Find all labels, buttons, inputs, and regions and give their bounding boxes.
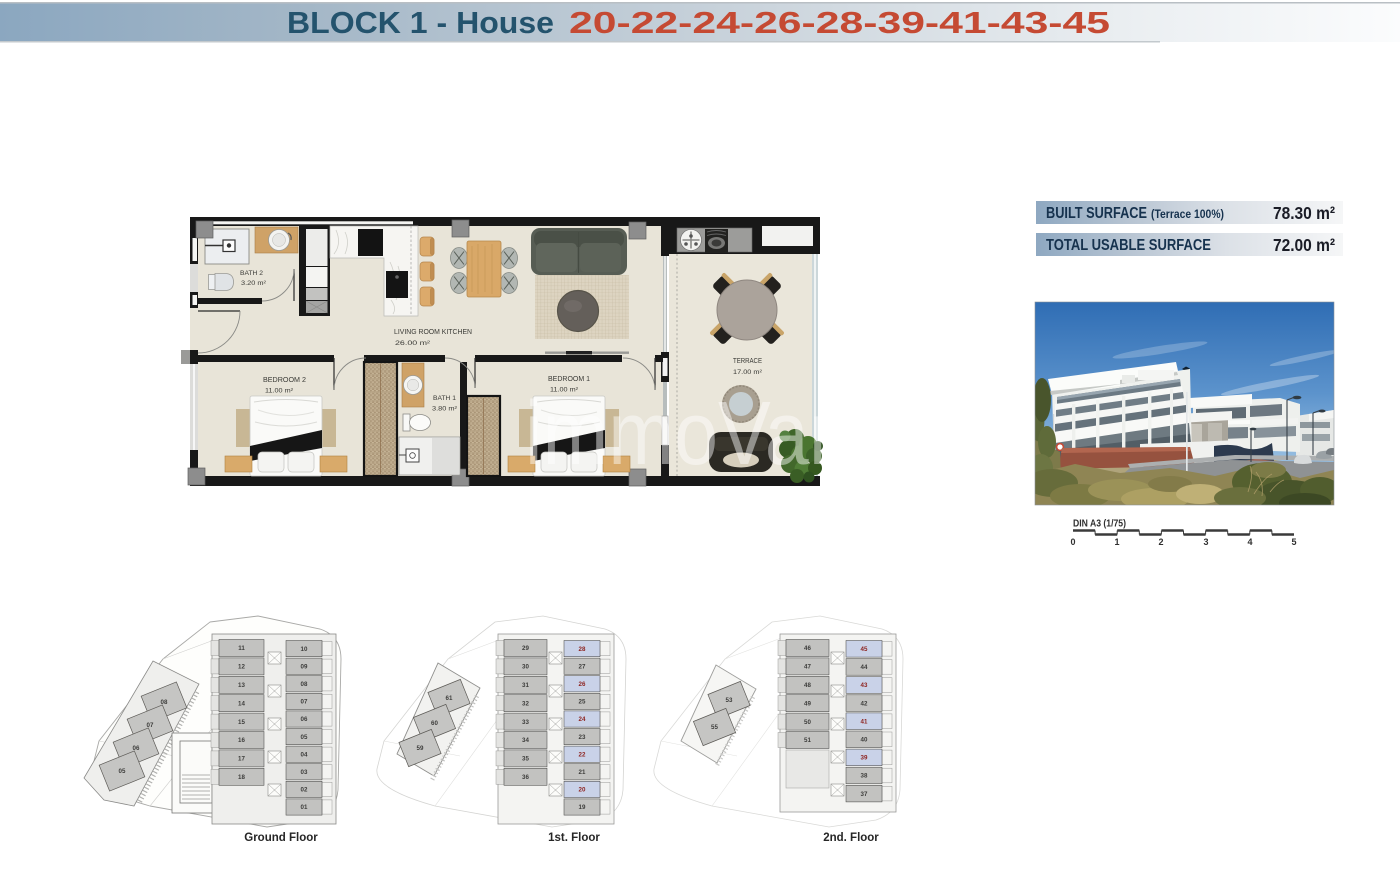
svg-text:19: 19 — [579, 804, 586, 811]
svg-text:60: 60 — [431, 720, 438, 727]
svg-text:36: 36 — [522, 774, 529, 781]
svg-text:2nd. Floor: 2nd. Floor — [823, 832, 879, 844]
svg-text:BATH 2: BATH 2 — [240, 270, 263, 277]
svg-text:17: 17 — [238, 756, 245, 763]
svg-text:40: 40 — [861, 737, 868, 744]
svg-text:21: 21 — [579, 769, 586, 776]
svg-text:DIN A3 (1/75): DIN A3 (1/75) — [1073, 518, 1126, 530]
svg-text:30: 30 — [522, 664, 529, 671]
svg-text:20-22-24-26-28-39-41-43-45: 20-22-24-26-28-39-41-43-45 — [569, 5, 1110, 40]
svg-text:3: 3 — [1203, 537, 1208, 547]
svg-text:17.00 m²: 17.00 m² — [733, 369, 763, 376]
svg-text:42: 42 — [861, 700, 868, 707]
svg-text:04: 04 — [301, 751, 308, 758]
svg-text:10: 10 — [301, 646, 308, 653]
svg-text:5: 5 — [1291, 537, 1296, 547]
svg-text:immoVar: immoVar — [525, 384, 835, 484]
svg-text:3.80 m²: 3.80 m² — [432, 406, 457, 413]
svg-text:TERRACE: TERRACE — [733, 356, 762, 365]
svg-text:32: 32 — [522, 700, 529, 707]
svg-text:26.00 m²: 26.00 m² — [395, 340, 431, 347]
svg-text:Ground Floor: Ground Floor — [244, 832, 318, 844]
svg-text:31: 31 — [522, 682, 529, 689]
svg-text:45: 45 — [861, 646, 868, 653]
svg-text:61: 61 — [446, 695, 453, 702]
svg-text:27: 27 — [579, 663, 586, 670]
svg-text:41: 41 — [861, 718, 868, 725]
svg-text:20: 20 — [579, 787, 586, 794]
svg-text:78.30 m²: 78.30 m² — [1273, 203, 1335, 223]
svg-text:03: 03 — [301, 769, 308, 776]
svg-text:05: 05 — [301, 734, 308, 741]
svg-text:25: 25 — [579, 699, 586, 706]
svg-text:51: 51 — [804, 737, 811, 744]
svg-text:28: 28 — [579, 646, 586, 653]
svg-text:59: 59 — [417, 745, 424, 752]
svg-text:01: 01 — [301, 804, 308, 811]
svg-text:44: 44 — [861, 664, 868, 671]
svg-text:BEDROOM 2: BEDROOM 2 — [263, 375, 306, 384]
svg-text:0: 0 — [1070, 537, 1075, 547]
svg-text:33: 33 — [522, 719, 529, 726]
svg-text:16: 16 — [238, 737, 245, 744]
svg-text:2: 2 — [1158, 537, 1163, 547]
svg-text:1: 1 — [1114, 537, 1119, 547]
svg-text:13: 13 — [238, 682, 245, 689]
svg-text:18: 18 — [238, 774, 245, 781]
svg-text:BEDROOM 1: BEDROOM 1 — [548, 374, 590, 383]
svg-text:4: 4 — [1247, 537, 1252, 547]
svg-text:34: 34 — [522, 737, 529, 744]
svg-text:LIVING ROOM KITCHEN: LIVING ROOM KITCHEN — [394, 327, 472, 336]
svg-text:35: 35 — [522, 756, 529, 763]
svg-text:BATH 1: BATH 1 — [433, 395, 456, 402]
svg-text:02: 02 — [301, 787, 308, 794]
svg-text:11.00 m²: 11.00 m² — [265, 388, 294, 395]
svg-text:53: 53 — [726, 697, 733, 704]
svg-text:55: 55 — [711, 724, 718, 731]
svg-text:06: 06 — [301, 716, 308, 723]
svg-text:11: 11 — [238, 645, 245, 652]
svg-text:46: 46 — [804, 645, 811, 652]
svg-text:BLOCK 1 - House: BLOCK 1 - House — [287, 5, 554, 40]
svg-text:09: 09 — [301, 663, 308, 670]
svg-text:38: 38 — [861, 773, 868, 780]
svg-text:3.20 m²: 3.20 m² — [241, 280, 266, 287]
svg-text:(Terrace 100%): (Terrace 100%) — [1151, 209, 1224, 221]
svg-text:72.00 m²: 72.00 m² — [1273, 235, 1335, 255]
svg-text:22: 22 — [579, 751, 586, 758]
svg-text:14: 14 — [238, 700, 245, 707]
svg-text:29: 29 — [522, 645, 529, 652]
svg-text:50: 50 — [804, 719, 811, 726]
svg-text:37: 37 — [861, 791, 868, 798]
svg-text:1st. Floor: 1st. Floor — [548, 832, 600, 844]
svg-text:47: 47 — [804, 664, 811, 671]
svg-text:TOTAL USABLE SURFACE: TOTAL USABLE SURFACE — [1046, 237, 1211, 254]
svg-text:24: 24 — [579, 716, 586, 723]
svg-text:05: 05 — [119, 768, 126, 775]
svg-text:39: 39 — [861, 755, 868, 762]
svg-text:07: 07 — [301, 699, 308, 706]
svg-text:48: 48 — [804, 682, 811, 689]
svg-text:26: 26 — [579, 681, 586, 688]
svg-text:12: 12 — [238, 664, 245, 671]
svg-text:49: 49 — [804, 700, 811, 707]
svg-text:15: 15 — [238, 719, 245, 726]
svg-text:43: 43 — [861, 682, 868, 689]
svg-text:08: 08 — [301, 681, 308, 688]
svg-text:23: 23 — [579, 734, 586, 741]
svg-text:BUILT SURFACE: BUILT SURFACE — [1046, 205, 1147, 222]
